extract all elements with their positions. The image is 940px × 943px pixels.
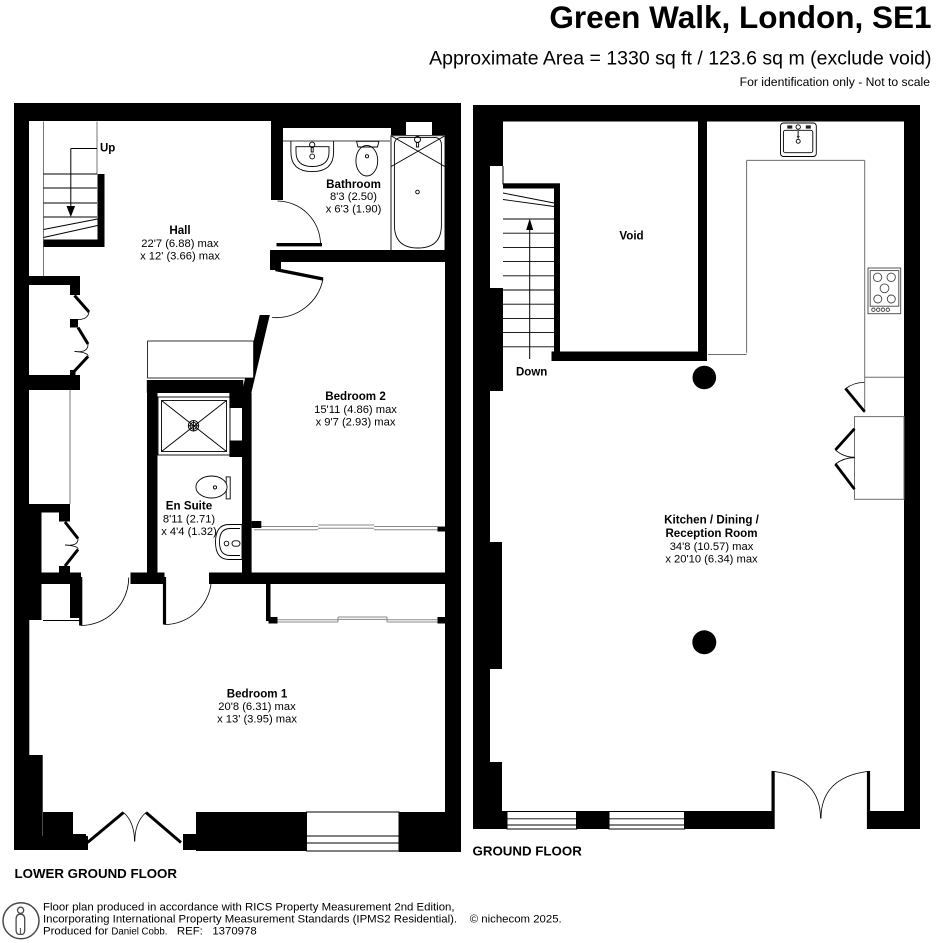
svg-text:Void: Void [619,230,643,243]
svg-text:20'8 (6.31) max: 20'8 (6.31) max [218,701,296,713]
svg-text:x 12' (3.66) max: x 12' (3.66) max [140,251,220,263]
svg-text:Up: Up [100,143,115,155]
svg-text:22'7 (6.88) max: 22'7 (6.88) max [141,238,219,250]
svg-text:15'11 (4.86) max: 15'11 (4.86) max [314,404,397,416]
svg-text:Bedroom 2: Bedroom 2 [325,390,386,403]
svg-text:x 9'7 (2.93) max: x 9'7 (2.93) max [316,416,396,428]
svg-text:Bedroom 1: Bedroom 1 [227,687,288,700]
svg-text:8'3 (2.50): 8'3 (2.50) [330,191,377,203]
svg-text:Produced for Daniel Cobb. RE: Produced for Daniel Cobb. REF: 1370978 [43,926,257,938]
svg-text:GROUND FLOOR: GROUND FLOOR [473,844,583,859]
svg-text:Hall: Hall [169,224,190,237]
svg-text:LOWER GROUND FLOOR: LOWER GROUND FLOOR [15,866,178,881]
svg-text:Approximate Area = 1330 sq ft: Approximate Area = 1330 sq ft / 123.6 sq… [429,48,931,70]
svg-text:Reception Room: Reception Room [665,527,757,540]
svg-text:x 20'10 (6.34) max: x 20'10 (6.34) max [665,554,758,566]
svg-text:x 4'4 (1.32): x 4'4 (1.32) [161,526,217,538]
svg-text:8'11 (2.71): 8'11 (2.71) [163,513,216,525]
svg-text:x 6'3 (1.90): x 6'3 (1.90) [326,203,382,215]
svg-text:Incorporating International Pr: Incorporating International Property Mea… [43,913,562,925]
svg-text:En Suite: En Suite [166,500,213,513]
svg-text:For identification only - Not: For identification only - Not to scale [740,75,931,89]
svg-text:Down: Down [516,367,547,379]
svg-text:Bathroom: Bathroom [326,178,381,191]
svg-text:Floor plan produced in accorda: Floor plan produced in accordance with R… [43,901,455,913]
svg-text:x 13' (3.95) max: x 13' (3.95) max [217,714,297,726]
svg-text:Kitchen / Dining /: Kitchen / Dining / [664,514,759,527]
svg-text:Green Walk, London, SE1: Green Walk, London, SE1 [549,0,931,35]
svg-text:34'8 (10.57) max: 34'8 (10.57) max [670,541,754,553]
